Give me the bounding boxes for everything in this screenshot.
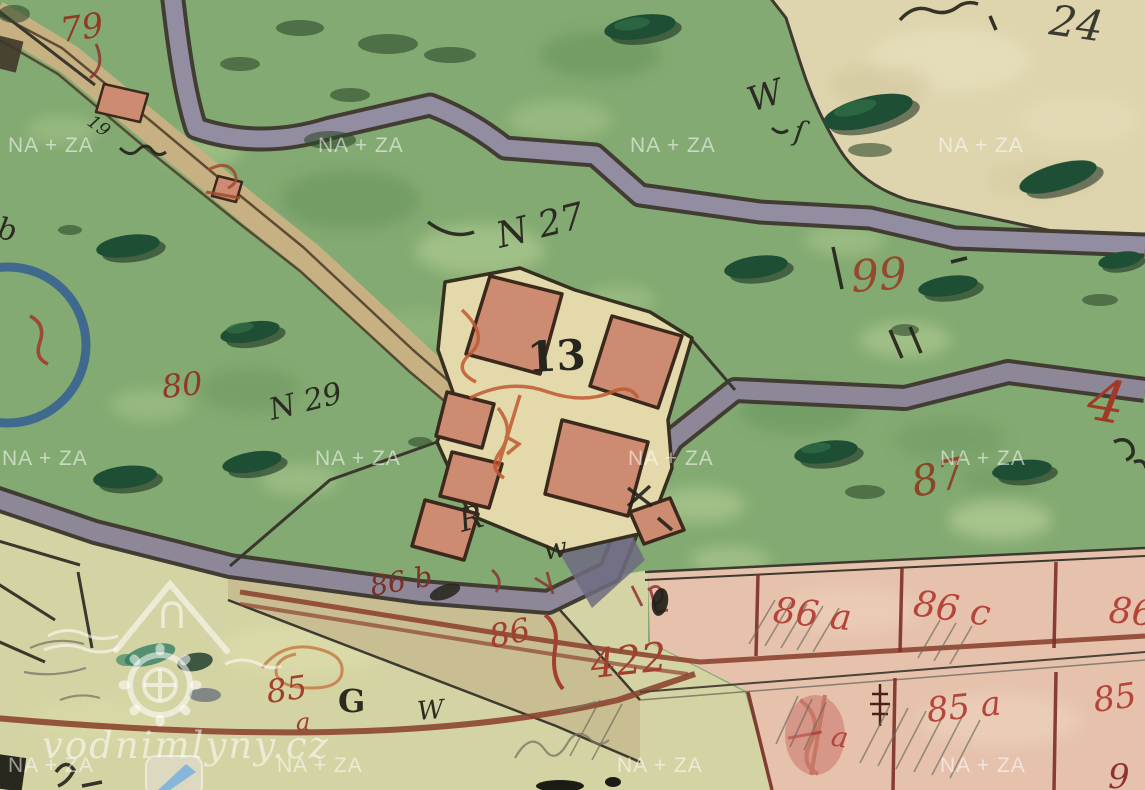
- watermark-text: NA + ZA: [318, 134, 404, 157]
- watermark-text: NA + ZA: [628, 447, 714, 470]
- watermark-text: NA + ZA: [940, 754, 1026, 777]
- map-canvas[interactable]: 79 19 W ſ 24 N 27 99 80 N 29 13 87 4 86 …: [0, 0, 1145, 790]
- map-control-fragment[interactable]: [146, 756, 202, 790]
- parcel-label: 86: [1107, 590, 1145, 635]
- parcel-label: 79: [58, 5, 106, 51]
- parcel-label: 9: [1108, 757, 1130, 790]
- watermark-text: NA + ZA: [617, 754, 703, 777]
- parcel-label: 24: [1046, 0, 1107, 51]
- parcel-label: 85: [1091, 675, 1139, 721]
- watermark-text: NA + ZA: [938, 134, 1024, 157]
- parcel-label: 85: [264, 668, 310, 711]
- watermark-text: NA + ZA: [8, 134, 94, 157]
- map-letter: G: [338, 682, 365, 720]
- parcel-label: 99: [849, 248, 908, 303]
- house-number-label: 13: [526, 330, 587, 382]
- map-letter: W: [416, 695, 448, 727]
- watermark-text: NA + ZA: [940, 447, 1026, 470]
- watermark-text: NA + ZA: [2, 447, 88, 470]
- watermark-text: NA + ZA: [630, 134, 716, 157]
- map-viewport[interactable]: 79 19 W ſ 24 N 27 99 80 N 29 13 87 4 86 …: [0, 0, 1145, 790]
- parcel-label: 86 a: [771, 590, 854, 639]
- parcel-label: 422: [587, 634, 669, 688]
- parcel-label: 85 a: [925, 683, 1003, 731]
- watermark-text: NA + ZA: [315, 447, 401, 470]
- parcel-label: 80: [160, 364, 204, 406]
